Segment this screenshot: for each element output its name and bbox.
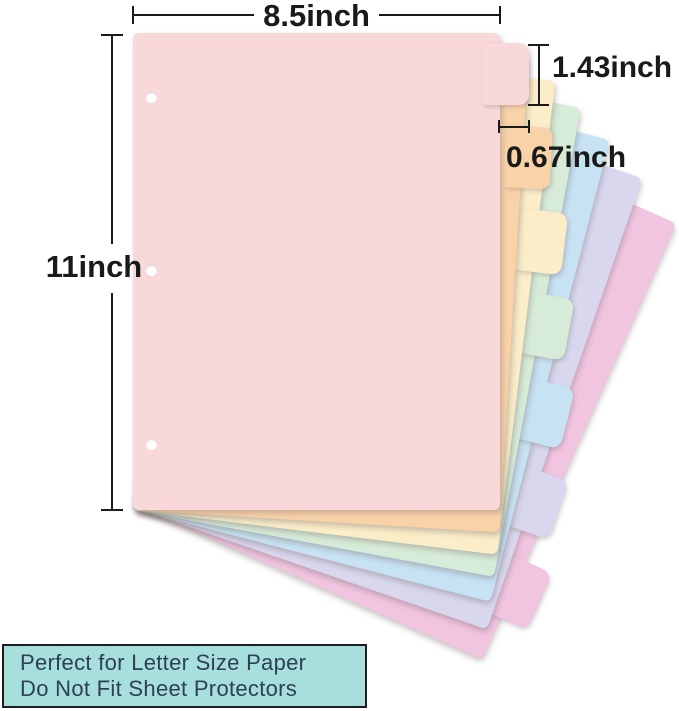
width-dimension: 8.5inch bbox=[132, 3, 501, 27]
divider-sheet-pink bbox=[133, 33, 500, 510]
product-diagram-canvas: 8.5inch 11inch 1.43inch 0.67inch Perfect… bbox=[0, 0, 679, 711]
tab-height-dimension-label: 1.43inch bbox=[552, 53, 672, 83]
width-dimension-line-left bbox=[134, 14, 254, 16]
divider-stack bbox=[0, 0, 679, 711]
divider-tab-pink bbox=[482, 43, 529, 105]
height-dimension-cap-bottom bbox=[101, 509, 123, 511]
tab-depth-dimension-line bbox=[499, 126, 530, 128]
punch-hole bbox=[146, 92, 157, 103]
width-dimension-label: 8.5inch bbox=[263, 0, 370, 31]
tab-depth-dimension-tick-right bbox=[528, 120, 530, 133]
info-box-line-2: Do Not Fit Sheet Protectors bbox=[20, 676, 365, 702]
info-box-line-1: Perfect for Letter Size Paper bbox=[20, 650, 365, 676]
height-dimension-line-lower bbox=[111, 293, 113, 510]
divider-tab-cream bbox=[514, 208, 568, 275]
width-dimension-tick-right bbox=[499, 6, 501, 24]
tab-height-dimension-line bbox=[538, 45, 540, 105]
width-dimension-line-right bbox=[379, 14, 499, 16]
punch-hole bbox=[146, 439, 157, 450]
tab-depth-dimension-tick-left bbox=[498, 120, 500, 133]
height-dimension-line-upper bbox=[111, 36, 113, 244]
tab-height-dimension-cap-bottom bbox=[528, 104, 549, 106]
tab-depth-dimension-label: 0.67inch bbox=[506, 143, 626, 173]
height-dimension-label: 11inch bbox=[38, 251, 150, 282]
info-box: Perfect for Letter Size Paper Do Not Fit… bbox=[2, 644, 367, 708]
height-dimension-cap-top bbox=[101, 34, 123, 36]
tab-height-dimension-cap-top bbox=[528, 44, 549, 46]
